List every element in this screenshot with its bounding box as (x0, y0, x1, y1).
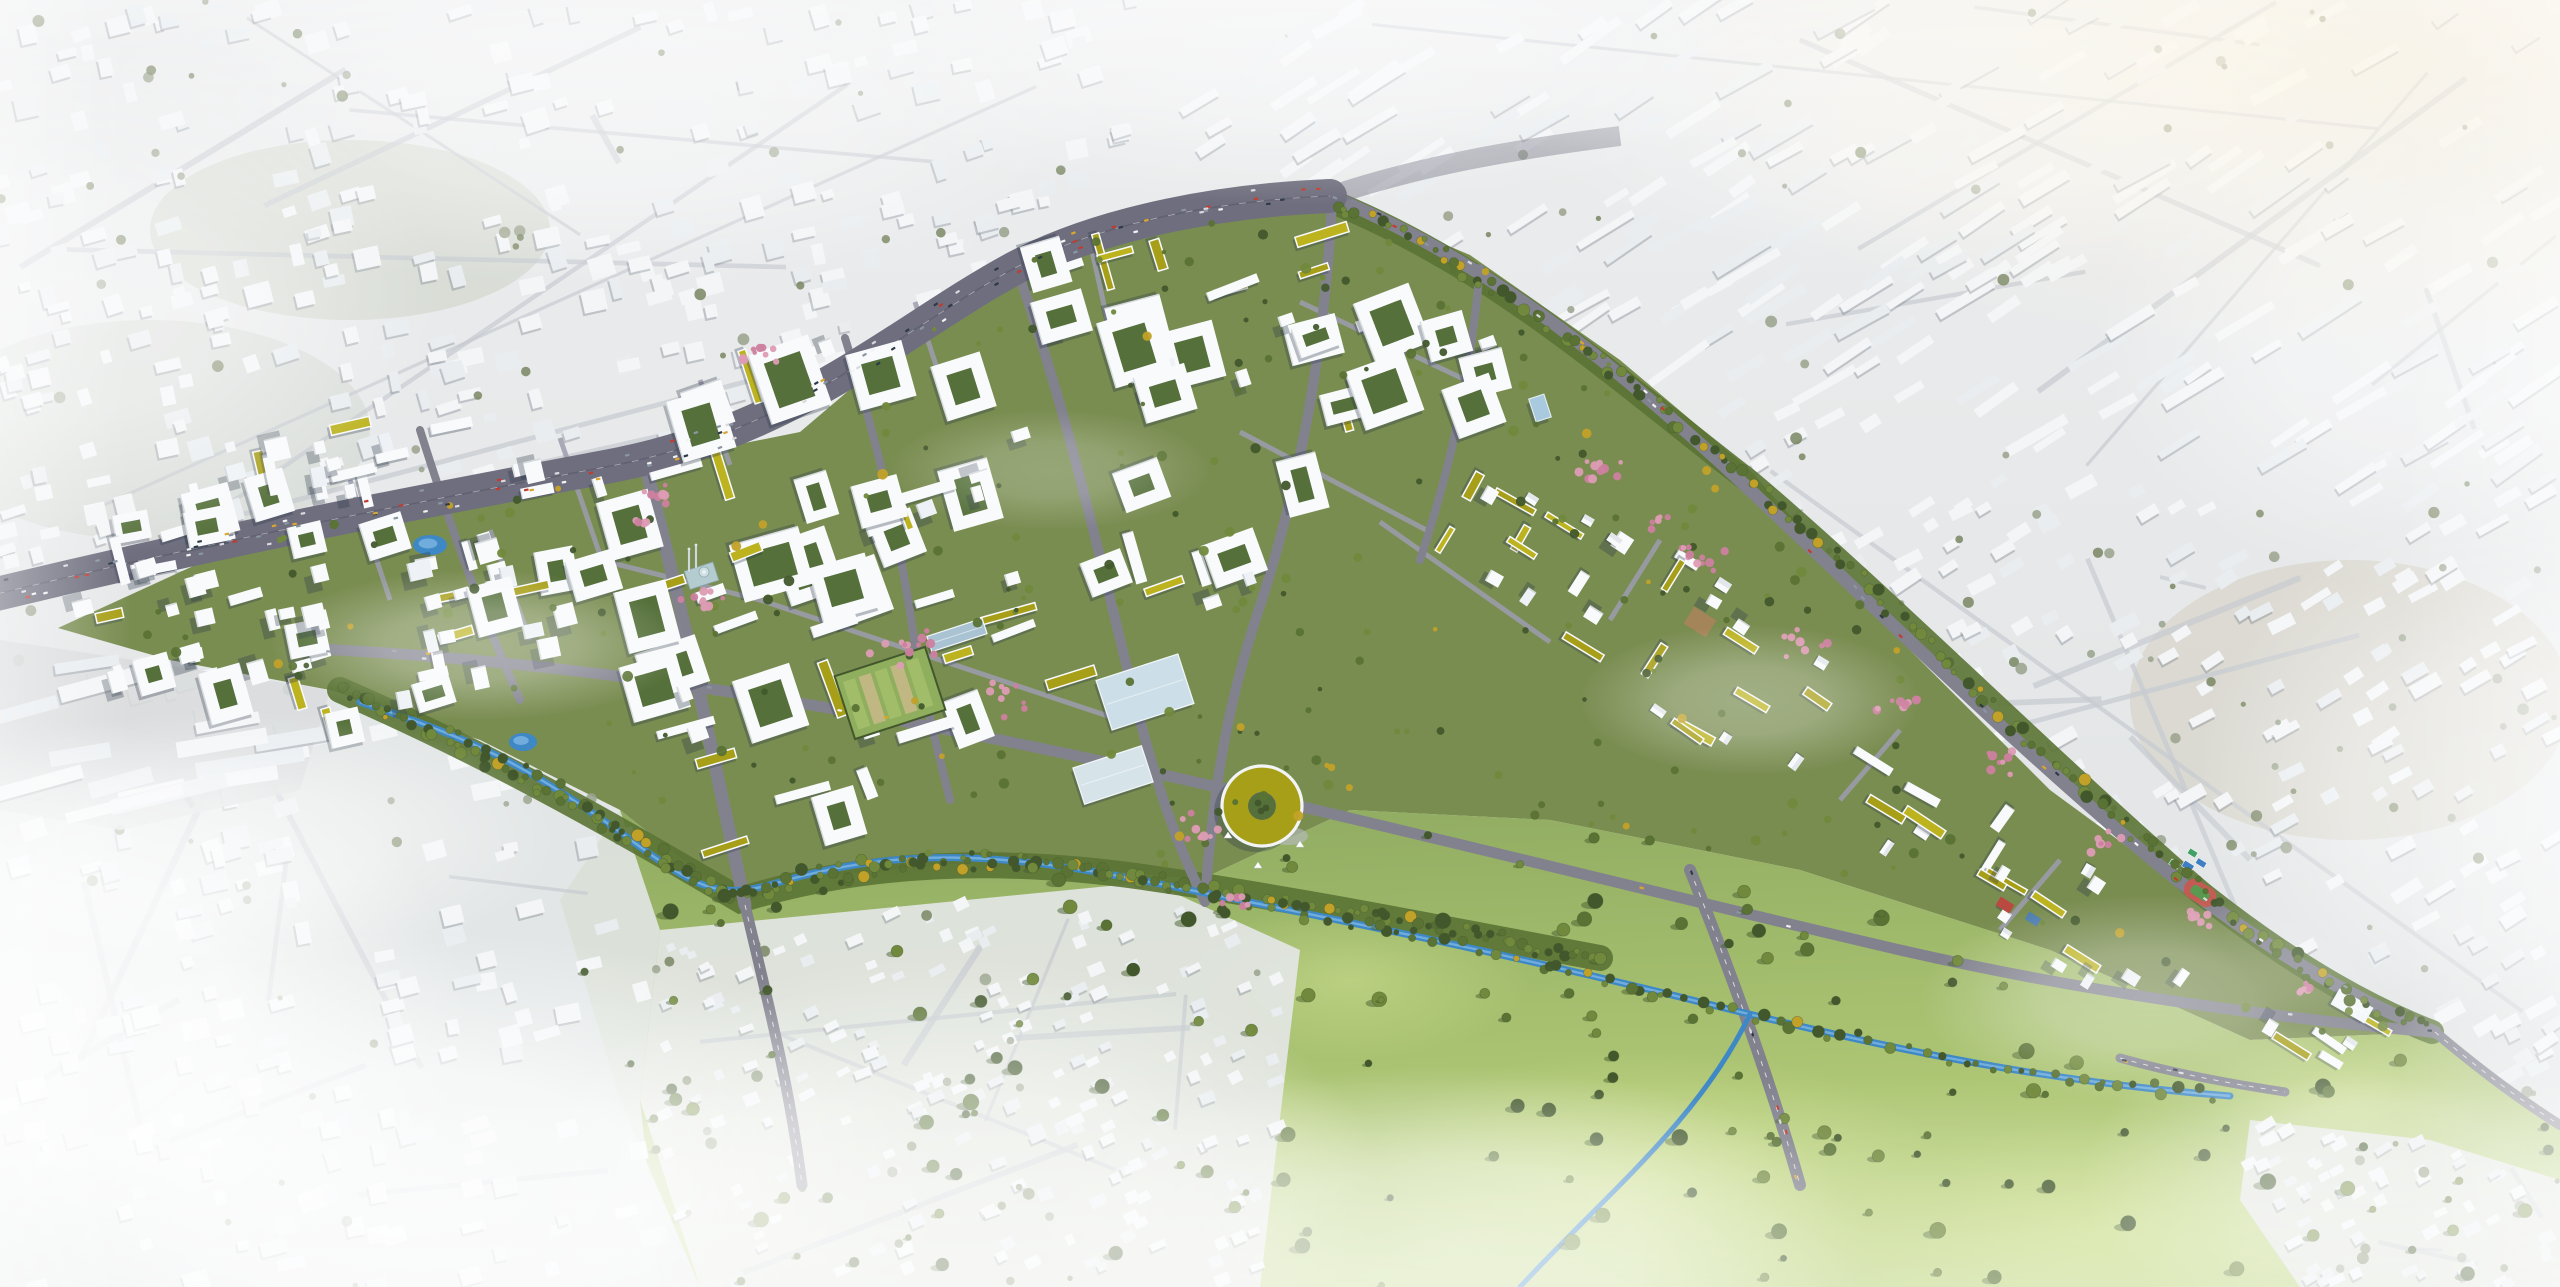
fog-patch (1920, 895, 2380, 1105)
fog-patch (270, 570, 690, 720)
fog-patch (1580, 625, 1920, 775)
fog-patch (890, 410, 1210, 530)
masterplan-scene (0, 0, 2560, 1287)
aerial-masterplan-rendering (0, 0, 2560, 1287)
